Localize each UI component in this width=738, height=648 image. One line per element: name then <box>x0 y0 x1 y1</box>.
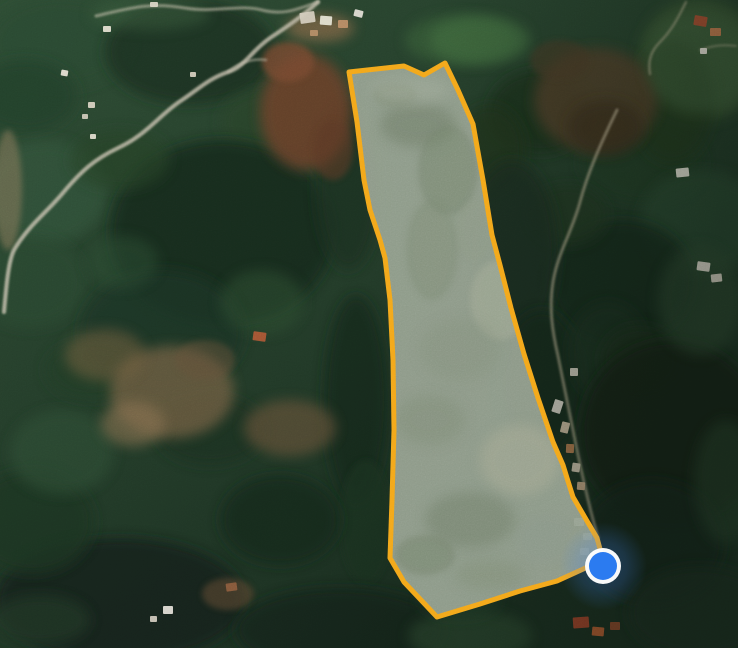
map-container <box>0 0 738 648</box>
location-marker-dot[interactable] <box>589 552 617 580</box>
satellite-map-canvas[interactable] <box>0 0 738 648</box>
current-location-marker[interactable] <box>559 522 647 610</box>
